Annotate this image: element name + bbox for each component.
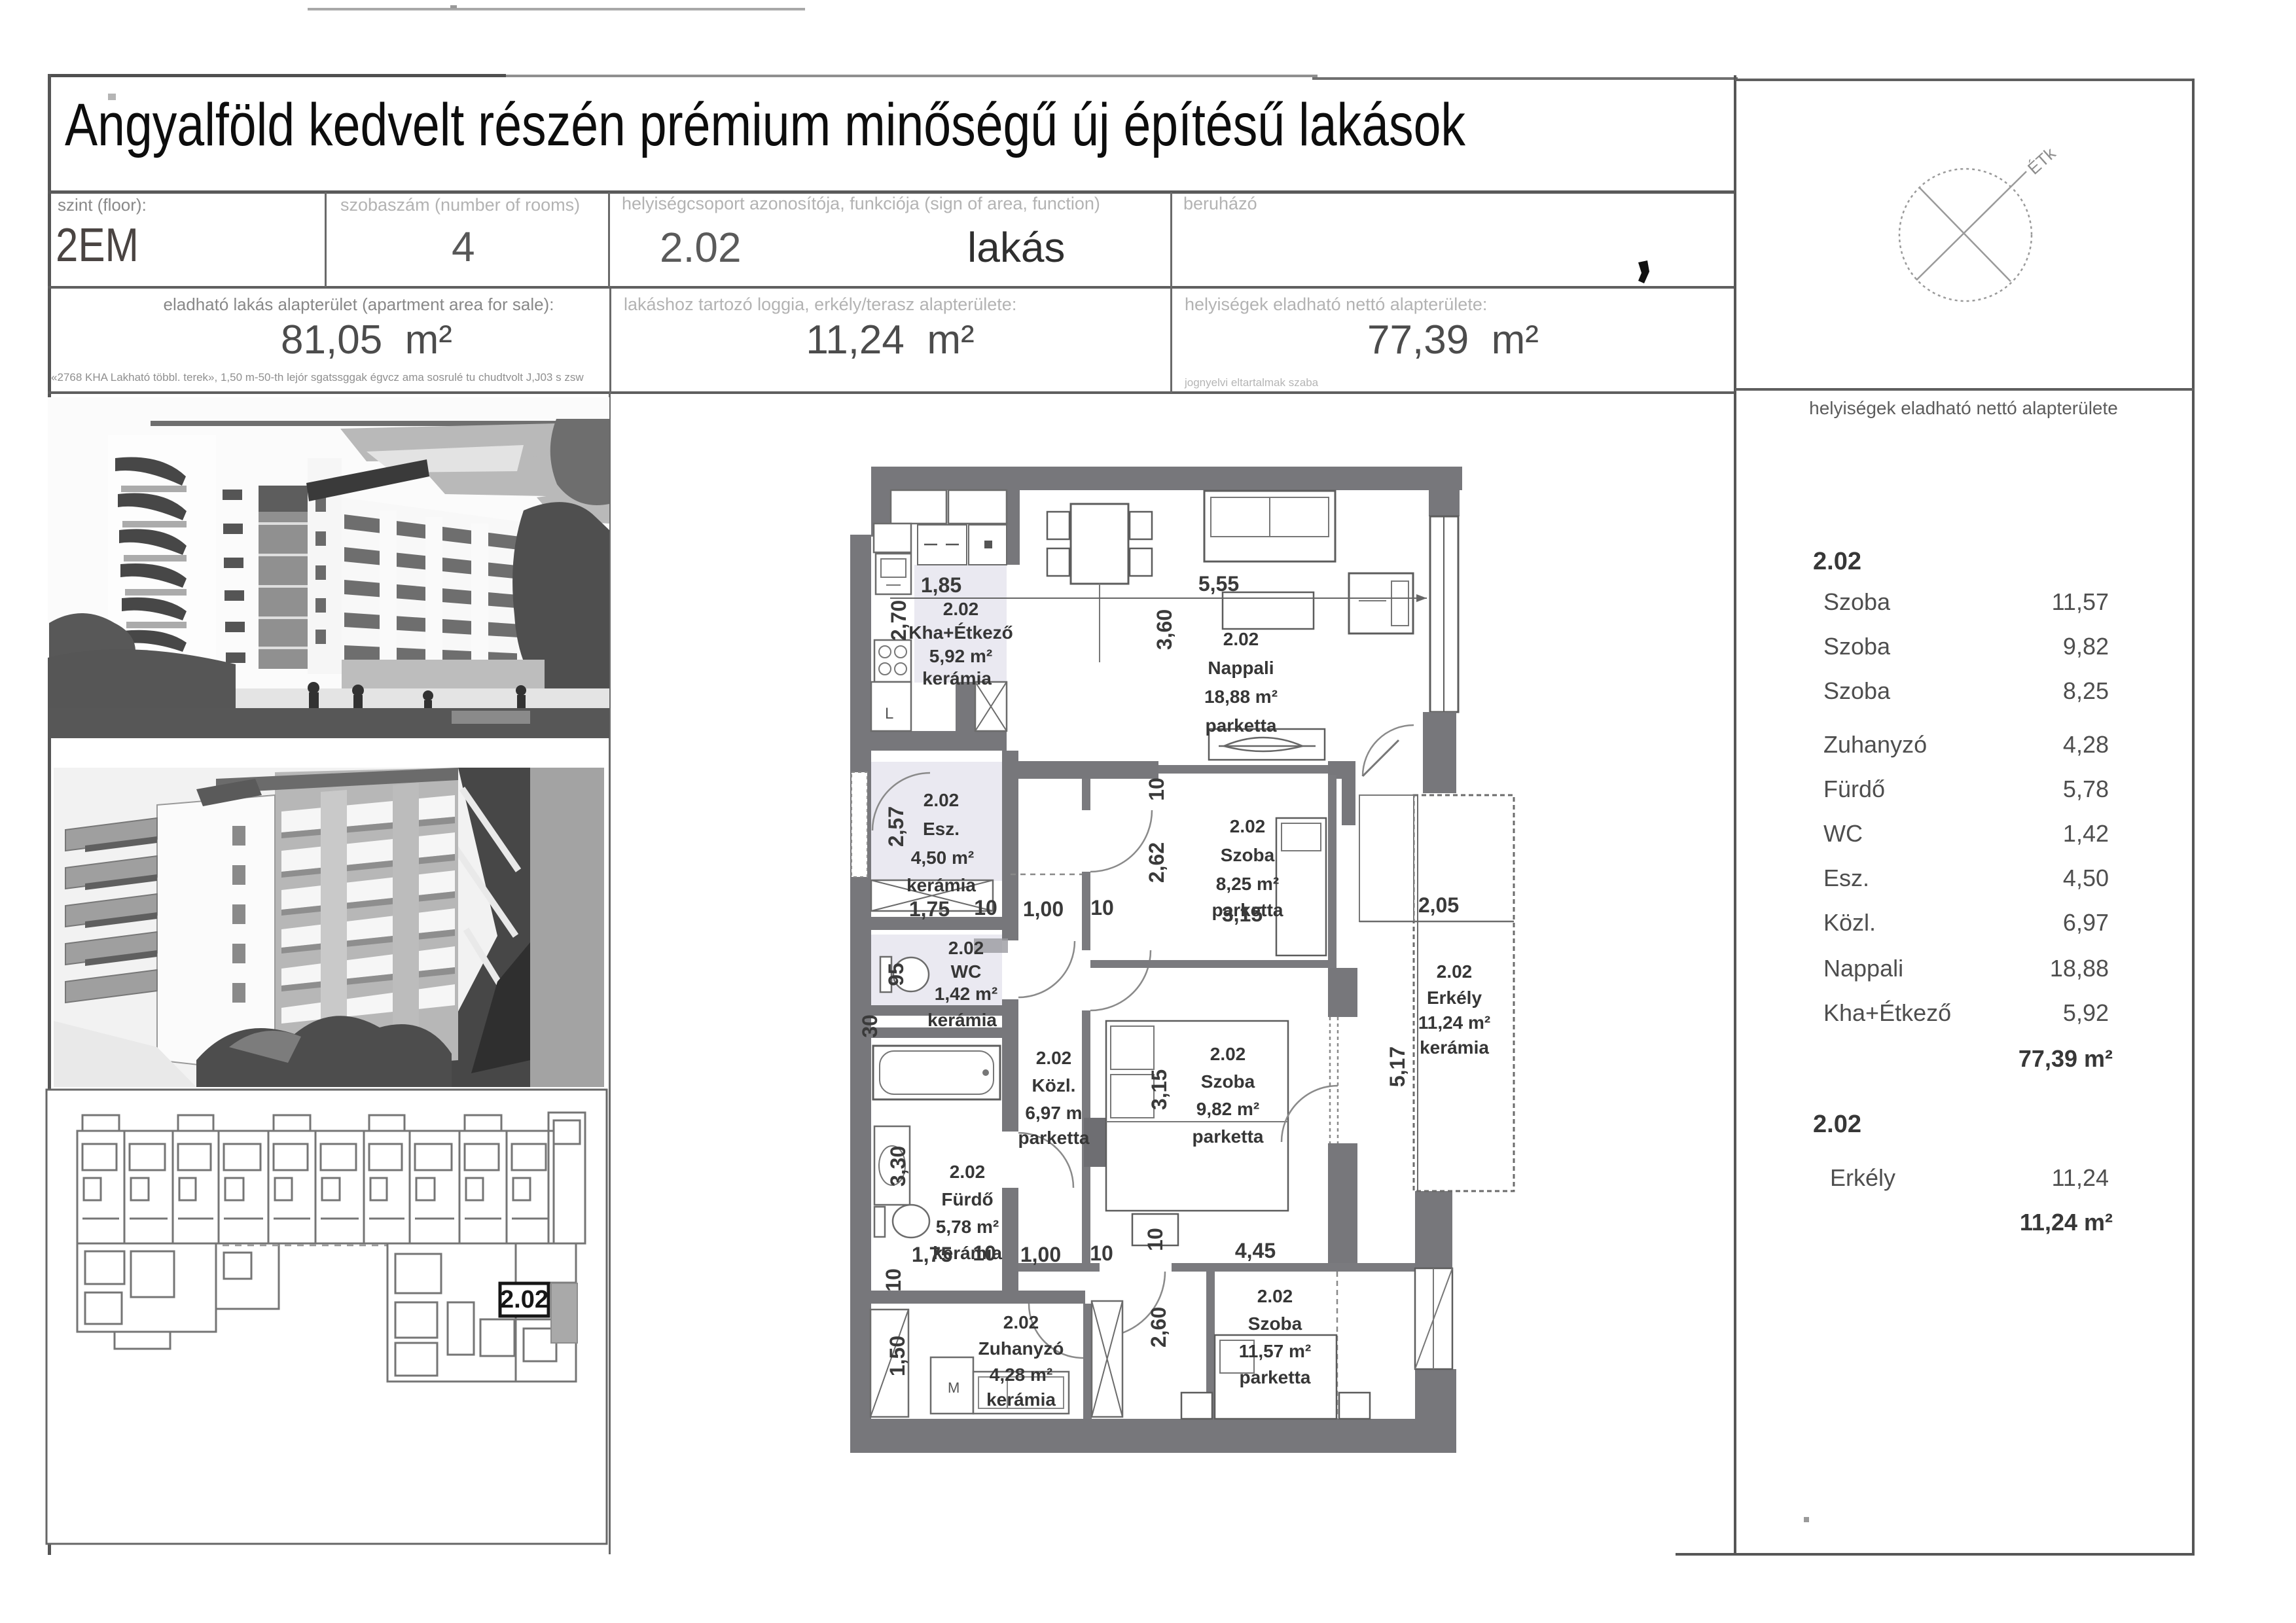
svg-text:M: M (948, 1380, 960, 1396)
svg-text:2.02: 2.02 (943, 599, 979, 619)
svg-text:2,70: 2,70 (887, 600, 910, 641)
svg-text:5,92: 5,92 (2063, 999, 2109, 1026)
svg-text:8,25 m²: 8,25 m² (1216, 874, 1280, 894)
svg-text:2EM: 2EM (56, 219, 139, 272)
svg-text:2.02: 2.02 (1257, 1286, 1293, 1306)
svg-text:9,82 m²: 9,82 m² (1196, 1099, 1260, 1119)
svg-text:helyiségek eladható nettó alap: helyiségek eladható nettó alapterülete: (1185, 294, 1487, 314)
svg-text:lakás: lakás (967, 224, 1065, 271)
svg-text:parketta: parketta (1193, 1126, 1264, 1147)
svg-text:6,97: 6,97 (2063, 909, 2109, 936)
svg-text:L: L (885, 705, 893, 722)
svg-text:kerámia: kerámia (927, 1010, 997, 1030)
svg-text:2.02: 2.02 (1813, 1111, 1861, 1138)
svg-text:10: 10 (1090, 896, 1114, 919)
svg-text:1,42: 1,42 (2063, 820, 2109, 847)
svg-text:Szoba: Szoba (1248, 1313, 1302, 1334)
svg-text:Szoba: Szoba (1823, 588, 1891, 615)
svg-text:beruházó: beruházó (1183, 194, 1257, 213)
svg-text:parketta: parketta (1018, 1128, 1090, 1148)
svg-text:eladható lakás alapterület (ap: eladható lakás alapterület (apartment ar… (164, 294, 554, 314)
svg-text:3,15: 3,15 (1222, 902, 1263, 926)
svg-text:18,88: 18,88 (2050, 955, 2109, 982)
svg-text:11,57: 11,57 (2052, 588, 2109, 615)
svg-text:2,05: 2,05 (1418, 893, 1459, 917)
svg-text:Nappali: Nappali (1823, 955, 1903, 982)
svg-text:Fürdő: Fürdő (941, 1189, 993, 1209)
svg-text:10: 10 (1145, 777, 1168, 801)
svg-text:Fürdő: Fürdő (1823, 776, 1885, 802)
svg-text:Zuhanyzó: Zuhanyzó (1823, 731, 1927, 758)
svg-text:2.02: 2.02 (660, 224, 742, 271)
svg-text:10: 10 (1143, 1228, 1167, 1251)
svg-text:10: 10 (974, 896, 997, 919)
svg-text:WC: WC (1823, 820, 1863, 847)
svg-text:kerámia: kerámia (1420, 1037, 1489, 1058)
svg-text:Kha+Étkező: Kha+Étkező (908, 622, 1013, 643)
svg-text:2.02: 2.02 (948, 938, 984, 958)
svg-text:kerámia: kerámia (922, 668, 992, 688)
svg-text:4,45: 4,45 (1235, 1239, 1276, 1262)
svg-text:helyiségcsoport azonosítója, f: helyiségcsoport azonosítója, funkciója (… (622, 194, 1100, 213)
svg-text:81,05 m²: 81,05 m² (281, 317, 452, 363)
svg-text:77,39 m²: 77,39 m² (1367, 317, 1539, 363)
svg-text:18,88 m²: 18,88 m² (1204, 687, 1278, 707)
svg-text:Szoba: Szoba (1823, 677, 1891, 704)
svg-text:3,60: 3,60 (1153, 609, 1176, 650)
svg-text:Közl.: Közl. (1032, 1075, 1076, 1096)
svg-text:1,85: 1,85 (921, 573, 961, 597)
svg-text:1,00: 1,00 (1020, 1243, 1061, 1266)
svg-text:1,75: 1,75 (909, 897, 950, 921)
svg-text:szint (floor):: szint (floor): (58, 195, 147, 215)
svg-text:Erkély: Erkély (1830, 1164, 1895, 1191)
svg-text:30: 30 (858, 1014, 882, 1038)
svg-text:2.02: 2.02 (1003, 1312, 1039, 1332)
svg-text:2,60: 2,60 (1147, 1307, 1170, 1347)
svg-text:jognyelvi eltartalmak szaba: jognyelvi eltartalmak szaba (1184, 376, 1319, 389)
svg-text:Kha+Étkező: Kha+Étkező (1823, 999, 1951, 1026)
svg-text:Szoba: Szoba (1823, 633, 1891, 660)
svg-text:Szoba: Szoba (1201, 1071, 1255, 1092)
svg-text:Szoba: Szoba (1221, 845, 1275, 865)
svg-text:Esz.: Esz. (923, 819, 960, 839)
svg-text:3,30: 3,30 (886, 1146, 910, 1186)
svg-text:parketta: parketta (1206, 715, 1277, 736)
svg-text:2,57: 2,57 (884, 806, 908, 847)
svg-text:5,92 m²: 5,92 m² (929, 646, 993, 666)
svg-text:11,24 m²: 11,24 m² (2020, 1209, 2113, 1236)
svg-text:8,25: 8,25 (2063, 677, 2109, 704)
svg-text:kerámia: kerámia (986, 1389, 1056, 1410)
svg-text:Zuhanyzó: Zuhanyzó (978, 1338, 1064, 1359)
svg-text:2.02: 2.02 (950, 1162, 986, 1182)
svg-text:10: 10 (973, 1241, 996, 1265)
svg-text:9,82: 9,82 (2063, 633, 2109, 660)
svg-text:6,97 m: 6,97 m (1025, 1103, 1082, 1123)
svg-text:2.02: 2.02 (1036, 1048, 1072, 1068)
svg-text:2.02: 2.02 (924, 790, 960, 810)
svg-text:4,50 m²: 4,50 m² (911, 847, 975, 868)
svg-text:2,62: 2,62 (1145, 842, 1168, 883)
svg-text:11,24: 11,24 (2052, 1164, 2109, 1191)
svg-text:lakáshoz tartozó loggia, erkél: lakáshoz tartozó loggia, erkély/terasz a… (624, 294, 1016, 314)
svg-text:Esz.: Esz. (1823, 865, 1869, 891)
svg-text:1,00: 1,00 (1023, 897, 1064, 921)
svg-text:95: 95 (884, 963, 908, 986)
svg-text:Angyalföld kedvelt részén prém: Angyalföld kedvelt részén prémium minősé… (65, 92, 1466, 158)
svg-text:4,28: 4,28 (2063, 731, 2109, 758)
svg-text:4: 4 (452, 223, 475, 270)
svg-text:1,42 m²: 1,42 m² (935, 984, 998, 1004)
svg-text:11,24 m²: 11,24 m² (806, 317, 974, 363)
svg-text:Közl.: Közl. (1823, 909, 1876, 936)
svg-text:2.02: 2.02 (1437, 961, 1473, 982)
svg-text:4,28 m²: 4,28 m² (990, 1364, 1053, 1385)
svg-text:3,15: 3,15 (1147, 1069, 1171, 1110)
svg-text:5,55: 5,55 (1198, 572, 1239, 596)
svg-text:parketta: parketta (1240, 1367, 1311, 1387)
svg-text:«2768 KHA Lakható többl. terek: «2768 KHA Lakható többl. terek», 1,50 m-… (51, 371, 584, 383)
svg-text:helyiségek eladható nettó alap: helyiségek eladható nettó alapterülete (1809, 398, 2118, 418)
svg-text:5,78: 5,78 (2063, 776, 2109, 802)
svg-text:Nappali: Nappali (1208, 658, 1274, 678)
svg-text:2.02: 2.02 (1813, 548, 1861, 575)
svg-text:1,50: 1,50 (886, 1336, 909, 1376)
svg-text:2.02: 2.02 (500, 1286, 548, 1313)
svg-text:szobaszám (number of rooms): szobaszám (number of rooms) (340, 195, 580, 215)
svg-text:2.02: 2.02 (1210, 1044, 1246, 1064)
svg-text:2.02: 2.02 (1223, 629, 1259, 649)
svg-text:WC: WC (951, 961, 982, 982)
svg-text:11,24 m²: 11,24 m² (1418, 1012, 1491, 1033)
svg-text:5,17: 5,17 (1386, 1046, 1409, 1087)
svg-text:11,57 m²: 11,57 m² (1239, 1341, 1312, 1361)
svg-text:5,78 m²: 5,78 m² (936, 1217, 999, 1237)
svg-text:10: 10 (882, 1268, 905, 1292)
svg-text:kerámia: kerámia (906, 875, 976, 895)
svg-text:10: 10 (1090, 1241, 1113, 1265)
svg-text:77,39 m²: 77,39 m² (2018, 1045, 2113, 1072)
svg-text:Erkély: Erkély (1427, 988, 1482, 1008)
svg-text:4,50: 4,50 (2063, 865, 2109, 891)
svg-text:1,75: 1,75 (912, 1243, 952, 1266)
svg-text:2.02: 2.02 (1230, 816, 1266, 836)
